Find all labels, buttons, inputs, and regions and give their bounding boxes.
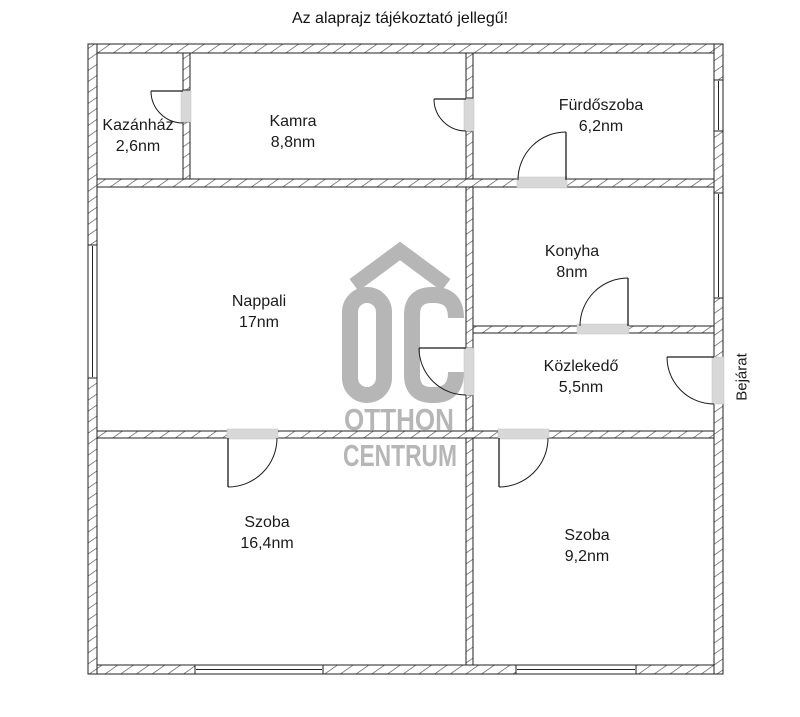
room-name: Konyha — [545, 241, 599, 262]
room-label-nappali: Nappali 17nm — [232, 291, 286, 333]
room-label-kamra: Kamra 8,8nm — [269, 111, 316, 153]
threshold-furdoszoba — [517, 177, 567, 188]
outer-wall-top — [88, 44, 723, 53]
room-area: 17nm — [232, 312, 286, 333]
room-name: Nappali — [232, 291, 286, 312]
room-name: Szoba — [240, 512, 293, 533]
wall-konyha-kozlekedo-right — [628, 326, 714, 333]
watermark-centrum: CENTRUM — [343, 438, 457, 473]
room-label-szoba-large: Szoba 16,4nm — [240, 512, 293, 554]
logo-letter-o — [350, 295, 384, 395]
room-label-szoba-small: Szoba 9,2nm — [564, 525, 609, 567]
wall-middle-bottom-center — [277, 431, 499, 438]
wall-central-vertical-middle — [466, 131, 473, 348]
wall-central-vertical-top — [466, 53, 473, 98]
window-szoba-large — [195, 665, 323, 674]
room-label-konyha: Konyha 8nm — [545, 241, 599, 283]
wall-konyha-kozlekedo-left — [473, 326, 578, 333]
wall-kazanhaz-kamra-lower — [183, 122, 190, 179]
entrance-label: Bejárat — [734, 353, 751, 401]
floor-plan-drawing: OTTHON CENTRUM — [0, 0, 800, 717]
room-name: Fürdőszoba — [559, 95, 644, 116]
room-name: Közlekedő — [544, 356, 619, 377]
threshold-kazanhaz — [181, 91, 191, 122]
room-area: 6,2nm — [559, 116, 644, 137]
door-szoba-small — [499, 438, 548, 487]
room-area: 8nm — [545, 262, 599, 283]
wall-kazanhaz-kamra-upper — [183, 53, 190, 90]
roof-chevron-icon — [354, 251, 446, 285]
window-szoba-small — [516, 665, 636, 674]
window-nappali — [88, 245, 97, 378]
room-label-kazanhaz: Kazánház 2,6nm — [102, 115, 173, 157]
wall-middle-bottom-left — [97, 431, 228, 438]
room-area: 8,8nm — [269, 132, 316, 153]
window-furdoszoba — [714, 80, 723, 131]
door-furdoszoba — [518, 132, 566, 180]
window-konyha — [714, 193, 723, 298]
threshold-konyha — [577, 324, 629, 334]
wall-toprow-bottom-right — [566, 179, 714, 187]
wall-toprow-bottom-left — [97, 179, 518, 187]
logo-letter-c — [412, 295, 456, 395]
threshold-kamra — [464, 99, 474, 131]
room-name: Kamra — [269, 111, 316, 132]
room-name: Szoba — [564, 525, 609, 546]
room-name: Kazánház — [102, 115, 173, 136]
room-area: 5,5nm — [544, 377, 619, 398]
door-bejarat — [667, 357, 714, 404]
threshold-szoba-large — [227, 429, 278, 439]
door-szoba-large — [228, 438, 277, 487]
room-label-furdoszoba: Fürdőszoba 6,2nm — [559, 95, 644, 137]
door-kamra — [434, 99, 466, 131]
threshold-bejarat — [712, 357, 724, 404]
oc-logo-monogram — [350, 295, 456, 395]
room-label-kozlekedo: Közlekedő 5,5nm — [544, 356, 619, 398]
door-konyha — [580, 278, 628, 326]
threshold-szoba-small — [498, 429, 549, 439]
threshold-nappali — [464, 348, 474, 395]
otthon-centrum-watermark: OTTHON CENTRUM — [343, 251, 457, 473]
wall-middle-bottom-right — [548, 431, 714, 438]
room-area: 16,4nm — [240, 533, 293, 554]
floor-plan-page: Az alaprajz tájékoztató jellegű! OTTHON … — [0, 0, 800, 717]
room-area: 2,6nm — [102, 136, 173, 157]
room-area: 9,2nm — [564, 546, 609, 567]
